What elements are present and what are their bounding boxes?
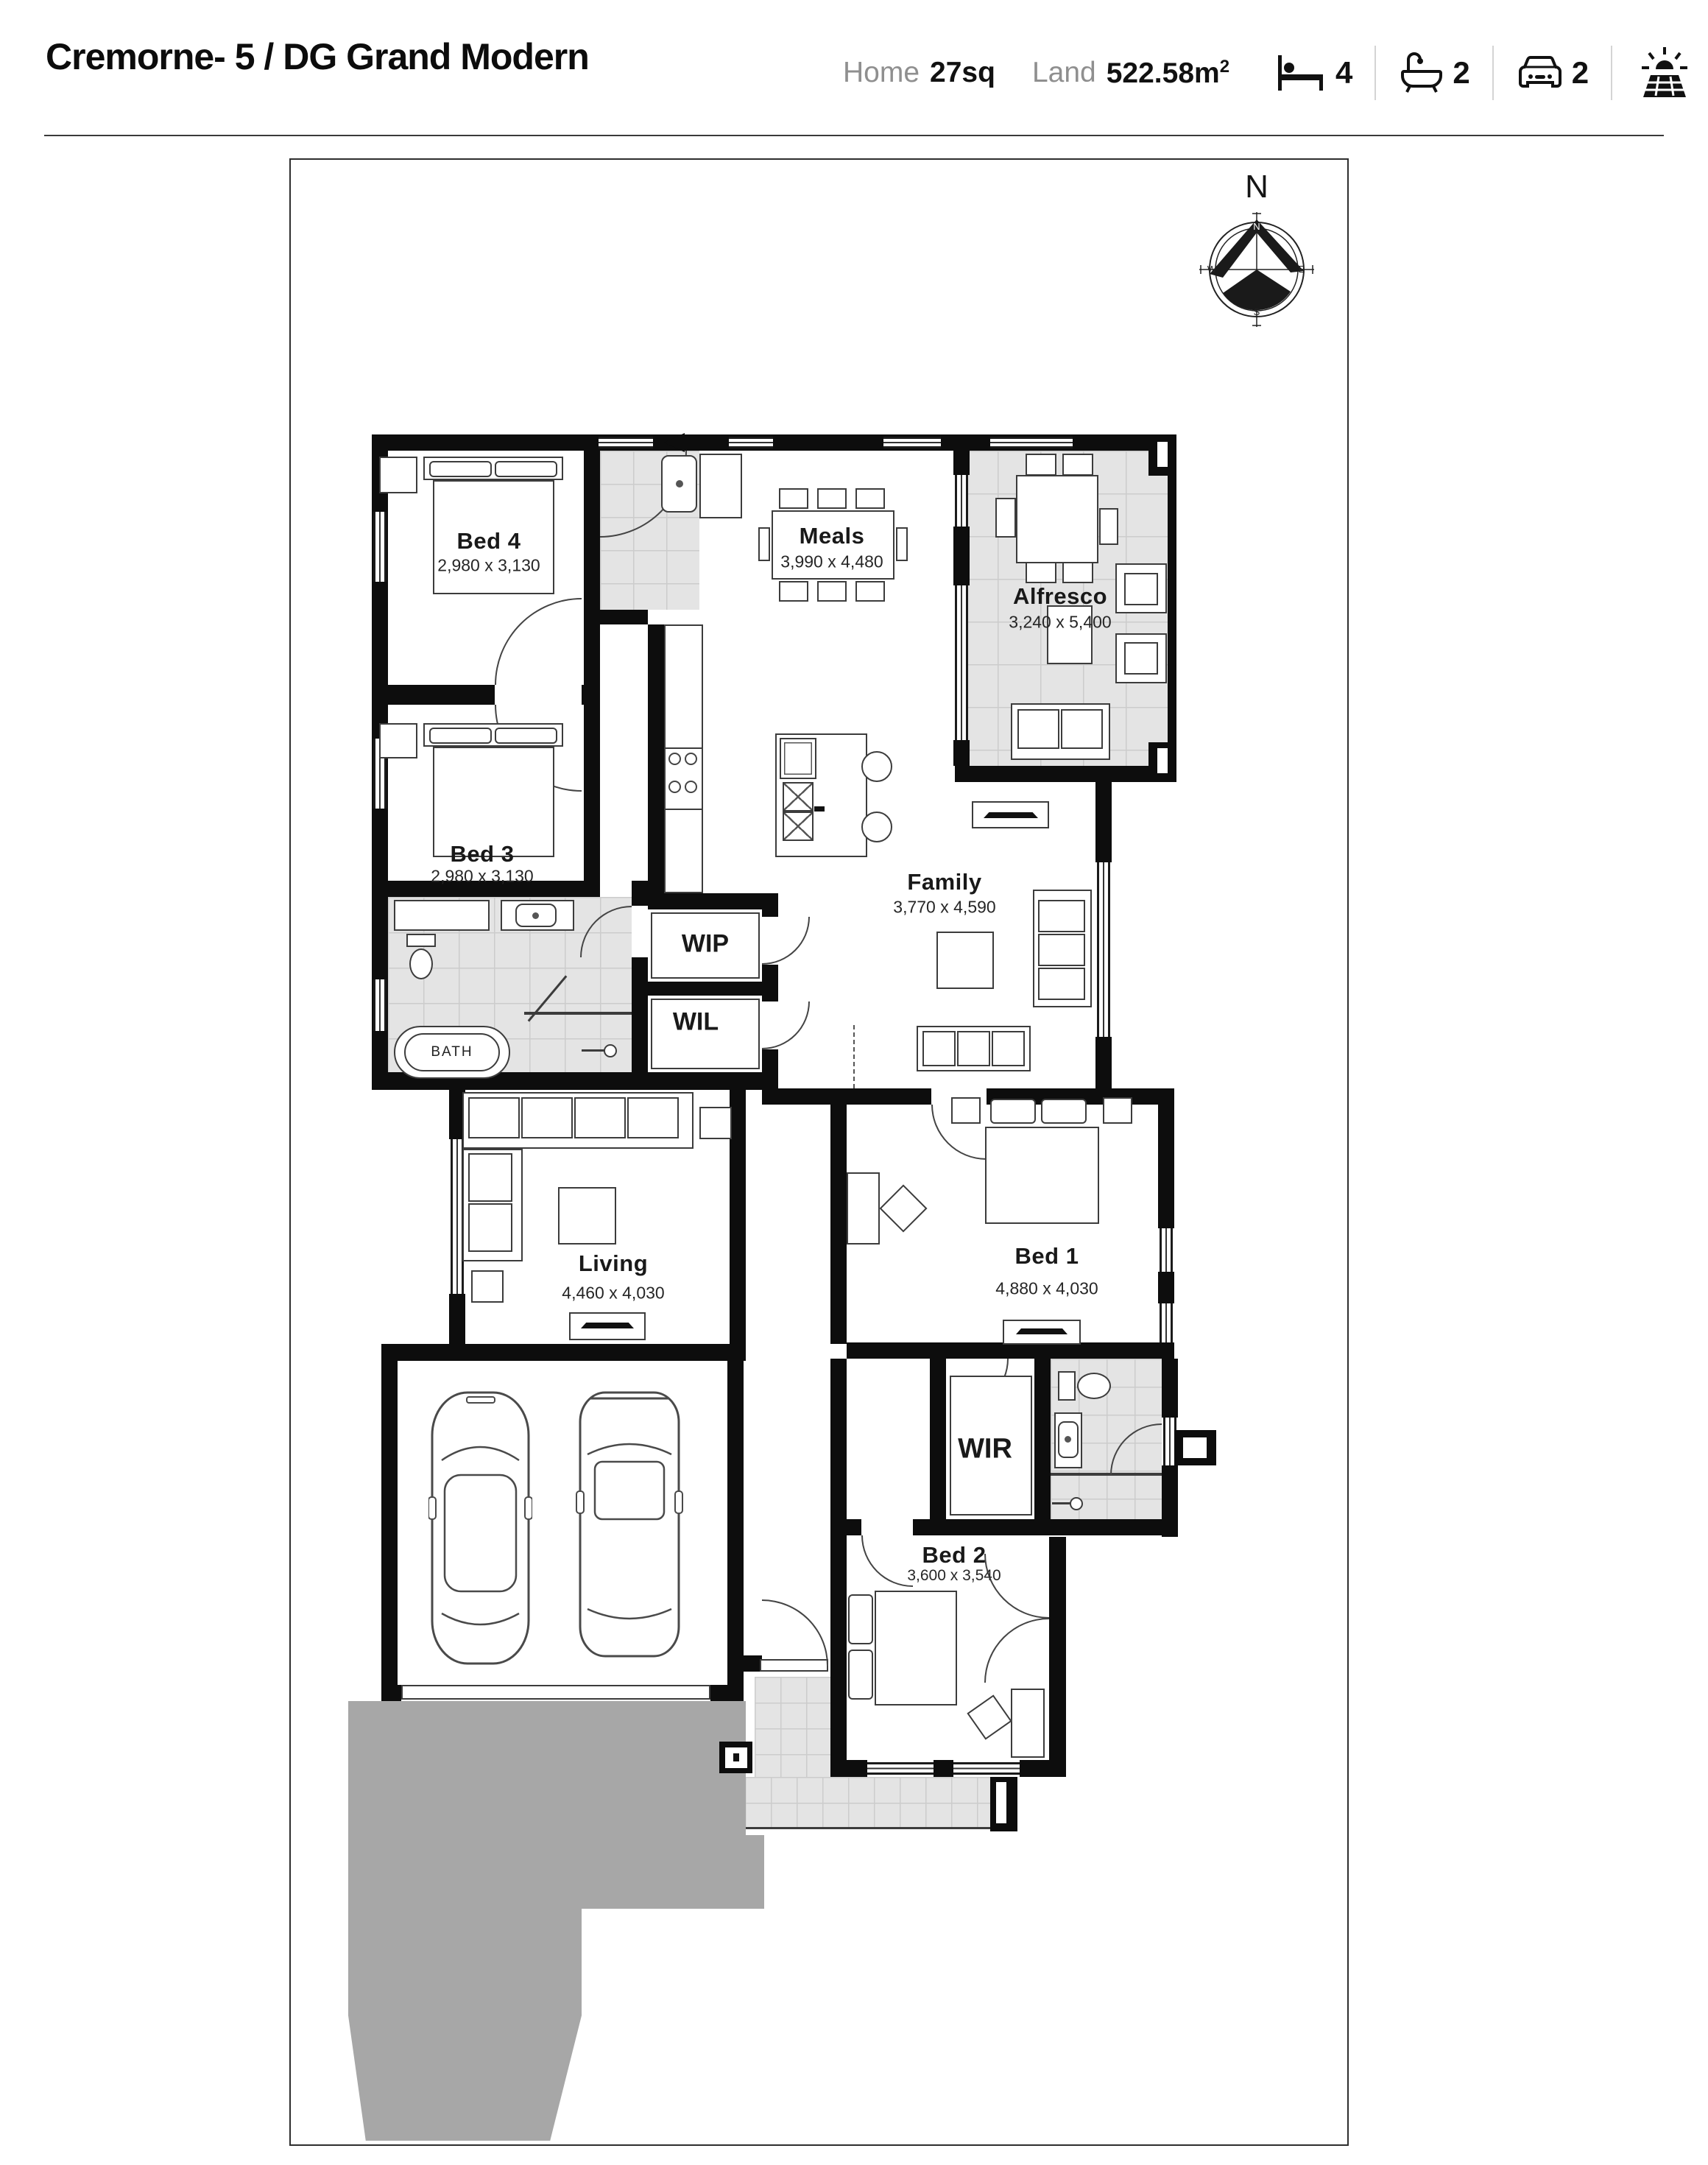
pillow: [495, 728, 557, 744]
wall: [762, 965, 778, 1001]
sliding-door: [955, 585, 968, 740]
divider: [1492, 46, 1494, 100]
divider: [1374, 46, 1376, 100]
wall: [955, 766, 1176, 782]
faucet: [814, 806, 825, 812]
shower-head: [604, 1044, 617, 1057]
wall: [1034, 1359, 1051, 1535]
wall: [830, 1760, 867, 1777]
wall: [830, 1088, 847, 1344]
wall: [730, 1090, 746, 1344]
car-icon: [1516, 54, 1564, 92]
wall: [953, 451, 970, 475]
bed-stat: 4: [1275, 54, 1352, 92]
stool: [861, 751, 892, 782]
car-top-view: [428, 1388, 532, 1668]
sofa-cushion: [992, 1031, 1025, 1066]
wall: [632, 957, 648, 1088]
wall: [584, 451, 600, 689]
dashed-line: [853, 1025, 855, 1088]
solar-panel-icon: [1634, 46, 1695, 100]
pillar-inner: [996, 1782, 1006, 1823]
room-label-wip: WIP: [682, 930, 729, 959]
bed: [875, 1591, 957, 1705]
driveway: [348, 1701, 746, 1835]
wall: [1095, 781, 1112, 862]
wall: [372, 685, 495, 705]
bath-label: BATH: [431, 1044, 473, 1060]
page-title: Cremorne- 5 / DG Grand Modern: [46, 35, 589, 78]
window: [729, 437, 773, 448]
driveway-crossover: [348, 2016, 582, 2141]
wall: [381, 1344, 746, 1361]
bath-stat: 2: [1398, 52, 1469, 94]
chair: [779, 488, 808, 509]
window: [867, 1762, 934, 1775]
car-count: 2: [1572, 55, 1589, 91]
sofa-cushion: [1038, 934, 1085, 966]
shower-screen: [524, 1012, 632, 1015]
compass-north-letter: N: [1245, 169, 1268, 205]
wall: [847, 1342, 1174, 1359]
wall: [762, 893, 778, 917]
tv: [1016, 1328, 1067, 1334]
wall: [632, 881, 648, 906]
land-value: 522.58m2: [1107, 57, 1229, 90]
wall: [1162, 1359, 1178, 1418]
pillow: [1041, 1099, 1087, 1124]
wall: [762, 1049, 778, 1072]
room-dims-bed2: 3,600 x 3,540: [907, 1567, 1001, 1585]
wall: [830, 1535, 847, 1777]
shower-arm: [1052, 1502, 1071, 1504]
fridge: [699, 454, 742, 518]
window: [1160, 1303, 1173, 1344]
letterbox-slot: [733, 1753, 739, 1761]
wall: [710, 1685, 744, 1701]
room-label-living: Living: [579, 1250, 648, 1277]
sofa-cushion: [922, 1031, 956, 1066]
toilet-bowl: [409, 948, 433, 979]
entry-arrow: [664, 433, 685, 452]
sofa-cushion: [468, 1203, 512, 1252]
side-table: [699, 1107, 732, 1139]
toilet-tank: [1058, 1371, 1076, 1401]
stool: [861, 812, 892, 842]
pillow: [990, 1099, 1036, 1124]
side-table: [936, 932, 994, 989]
nightstand: [1103, 1097, 1132, 1124]
wall: [1162, 1465, 1178, 1537]
wall: [934, 1760, 953, 1777]
armchair-cushion: [1124, 642, 1158, 675]
room-label-bed1: Bed 1: [1015, 1243, 1079, 1270]
pillow: [495, 461, 557, 477]
room-dims-bed4: 2,980 x 3,130: [437, 556, 540, 576]
wall: [830, 1519, 861, 1535]
sink: [783, 812, 814, 841]
wall: [648, 982, 778, 996]
bath-count: 2: [1453, 55, 1469, 91]
entry-arrow-stem: [683, 440, 710, 446]
room-label-wil: WIL: [673, 1008, 719, 1037]
coffee-table: [558, 1187, 616, 1245]
shower-head: [1070, 1497, 1083, 1510]
porch-floor: [719, 1777, 1016, 1828]
bed: [985, 1127, 1099, 1224]
drain: [676, 480, 683, 487]
sofa-cushion: [574, 1097, 626, 1138]
bed-icon: [1275, 54, 1328, 92]
tv: [581, 1323, 634, 1328]
wall: [600, 610, 648, 624]
compass-w: W: [1207, 264, 1217, 275]
room-label-bed3: Bed 3: [451, 841, 515, 867]
room-label-wir: WIR: [958, 1434, 1012, 1465]
wall: [648, 624, 664, 893]
shower-arm: [582, 1049, 605, 1052]
room-label-alfresco: Alfresco: [1013, 583, 1107, 610]
window: [990, 437, 1073, 448]
desk: [1011, 1689, 1045, 1758]
island-appliance: [780, 738, 816, 779]
wall: [1095, 1037, 1112, 1090]
wall: [913, 1519, 1178, 1535]
wall: [1158, 1272, 1174, 1303]
wall: [1168, 476, 1176, 742]
driveway: [348, 1909, 582, 2016]
sofa-cushion: [1038, 900, 1085, 932]
chair: [1099, 508, 1118, 545]
solar-stat: [1634, 46, 1695, 100]
pier-inner: [1183, 1437, 1207, 1458]
sofa-cushion: [957, 1031, 990, 1066]
tv: [984, 812, 1038, 818]
bath-bench: [394, 900, 490, 931]
sofa-cushion: [1038, 968, 1085, 1000]
room-dims-bed3: 2,980 x 3,130: [431, 867, 533, 887]
wall: [381, 1361, 398, 1701]
sofa-cushion: [468, 1153, 512, 1202]
sofa-cushion: [468, 1097, 520, 1138]
window: [373, 979, 387, 1031]
wall: [953, 740, 970, 766]
home-value: 27sq: [930, 57, 995, 89]
nightstand: [951, 1097, 981, 1124]
chair: [779, 581, 808, 602]
chair: [1062, 454, 1093, 476]
room-label-family: Family: [907, 869, 981, 895]
outdoor-table: [1016, 475, 1098, 563]
wall: [762, 1088, 931, 1105]
nightstand: [379, 723, 417, 758]
chair: [758, 527, 770, 561]
land-label: Land: [1032, 57, 1096, 89]
post-inner: [1157, 442, 1168, 467]
chair: [817, 581, 847, 602]
floorplan-page: Cremorne- 5 / DG Grand Modern Home 27sq …: [0, 0, 1708, 2165]
wall: [930, 1359, 946, 1535]
porch-floor: [755, 1677, 830, 1777]
compass-e: E: [1299, 264, 1305, 275]
wall: [1020, 1760, 1066, 1777]
room-dims-meals: 3,990 x 4,480: [780, 552, 883, 572]
compass-n: N: [1253, 221, 1260, 232]
home-label: Home: [843, 57, 920, 89]
chair: [1062, 561, 1093, 583]
wall: [381, 1685, 401, 1701]
room-dims-family: 3,770 x 4,590: [893, 898, 995, 918]
wall: [1158, 1105, 1174, 1228]
sofa-cushion: [1017, 709, 1059, 749]
pillow: [429, 728, 492, 744]
bed-count: 4: [1335, 55, 1352, 91]
chair: [896, 527, 908, 561]
window: [599, 437, 653, 448]
bath-icon: [1398, 52, 1445, 94]
post-inner: [1157, 748, 1168, 773]
nightstand: [379, 457, 417, 493]
car-stat: 2: [1516, 54, 1589, 92]
sofa-cushion: [627, 1097, 679, 1138]
driveway: [348, 1835, 764, 1909]
sofa-cushion: [521, 1097, 573, 1138]
desk: [847, 1172, 880, 1245]
wall: [1049, 1537, 1066, 1760]
toilet-tank: [406, 934, 436, 947]
room-label-bed4: Bed 4: [457, 528, 521, 555]
room-label-meals: Meals: [800, 523, 865, 549]
room-dims-living: 4,460 x 4,030: [562, 1284, 664, 1303]
garage-door: [401, 1685, 710, 1700]
chair: [855, 488, 885, 509]
window: [953, 1762, 1020, 1775]
wall: [727, 1361, 744, 1701]
header-rule: [44, 135, 1664, 136]
wall: [648, 893, 778, 909]
window: [373, 512, 387, 582]
window: [883, 437, 941, 448]
chair: [817, 488, 847, 509]
header-stats: Home 27sq Land 522.58m2 4 2: [843, 46, 1695, 100]
pillow: [848, 1594, 873, 1644]
room-dims-alfresco: 3,240 x 5,400: [1009, 613, 1111, 633]
chair: [1026, 561, 1056, 583]
wall: [584, 705, 600, 897]
chair: [1026, 454, 1056, 476]
sofa-cushion: [1061, 709, 1103, 749]
window: [955, 475, 968, 527]
drain: [1065, 1436, 1071, 1443]
chair: [855, 581, 885, 602]
compass: N N E S W: [1189, 168, 1324, 340]
wall: [830, 1359, 847, 1519]
wall: [582, 685, 600, 705]
room-dims-bed1: 4,880 x 4,030: [995, 1279, 1098, 1299]
divider: [1611, 46, 1612, 100]
pillow: [429, 461, 492, 477]
compass-s: S: [1254, 306, 1260, 317]
drain: [532, 912, 539, 919]
chair: [995, 498, 1016, 538]
window: [1097, 862, 1110, 1037]
wall: [953, 527, 970, 585]
porch-edge: [719, 1827, 1016, 1829]
room-label-bed2: Bed 2: [922, 1542, 987, 1569]
sink: [783, 782, 814, 812]
side-table: [471, 1270, 504, 1303]
car-top-view: [576, 1388, 683, 1661]
toilet-bowl: [1077, 1373, 1111, 1399]
window: [1160, 1228, 1173, 1272]
pillow: [848, 1650, 873, 1700]
armchair-cushion: [1124, 573, 1158, 605]
